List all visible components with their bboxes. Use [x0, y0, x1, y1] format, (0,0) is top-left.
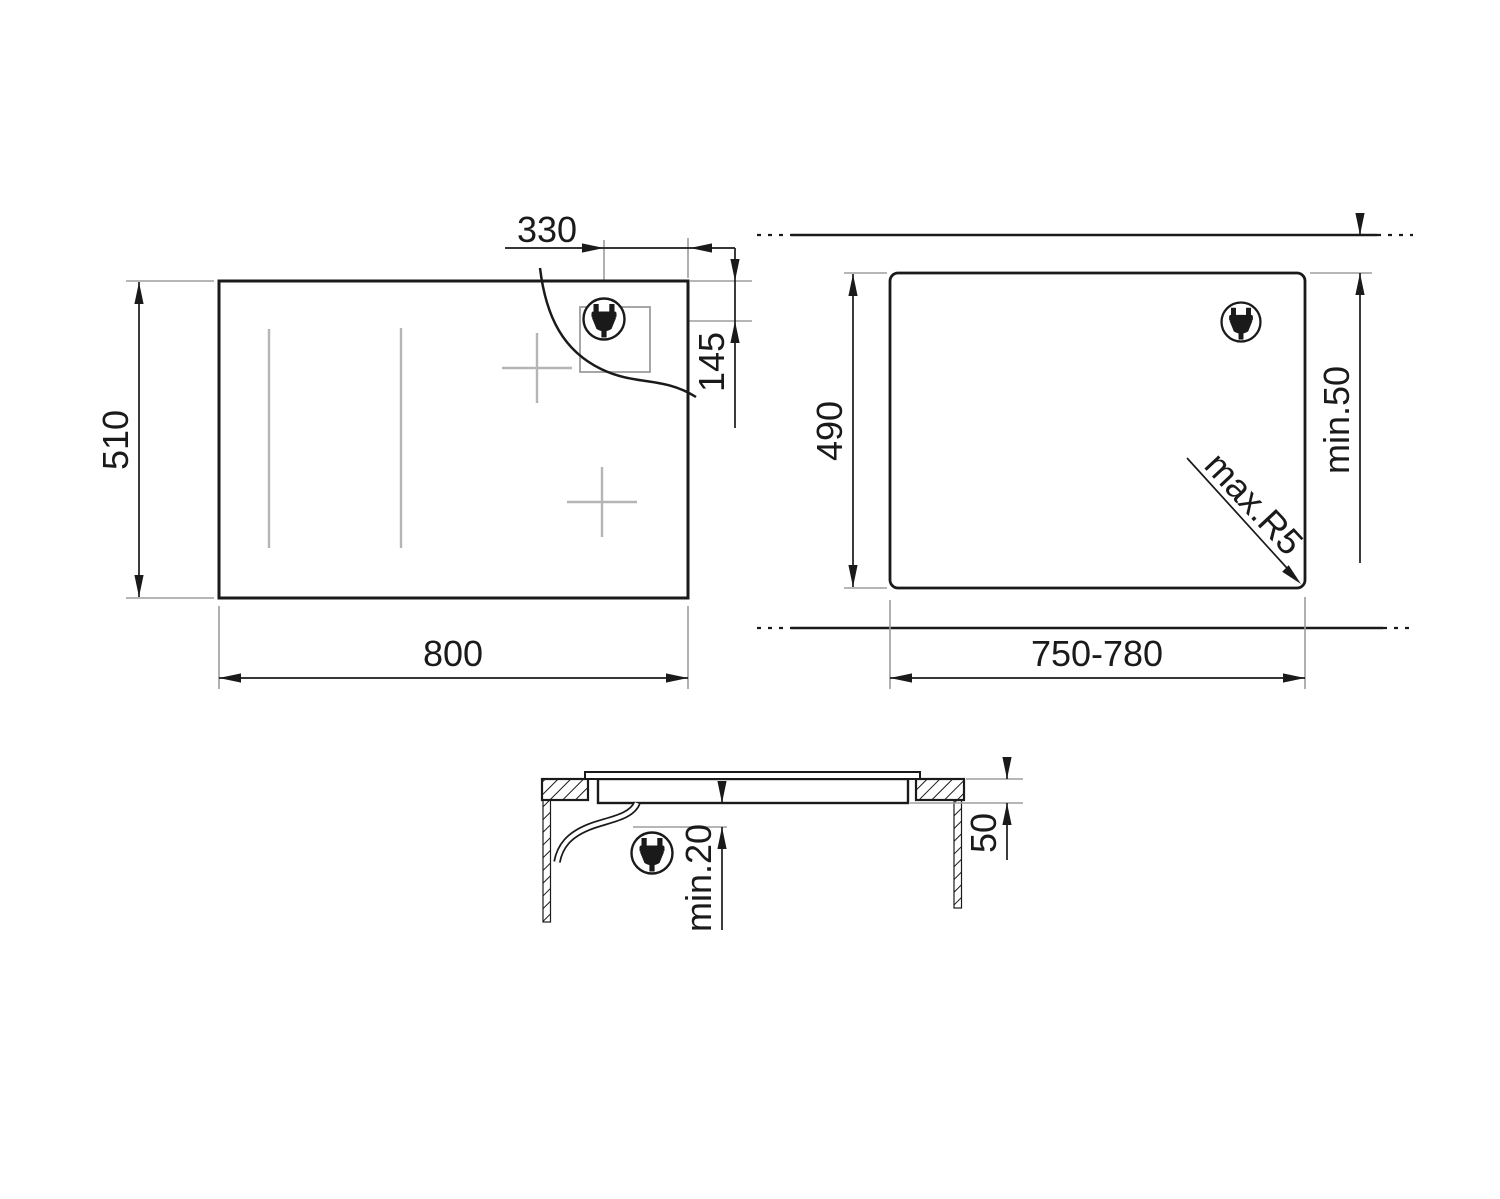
dimension-height-510: 510	[95, 282, 144, 597]
hob-body-section	[598, 779, 908, 803]
dimension-width-800: 800	[219, 633, 688, 683]
cutout-view: 490 750-780 min.50 max.R5	[757, 213, 1413, 689]
dimension-label: 750-780	[1031, 633, 1163, 674]
dimension-label: 145	[691, 332, 732, 392]
dimension-label: 50	[963, 813, 1004, 853]
dimension-label: min.50	[1316, 366, 1357, 474]
power-plug-icon	[1222, 303, 1261, 342]
dimension-label: 330	[517, 209, 577, 250]
dimension-cutout-height-490: 490	[809, 274, 858, 587]
dimension-label: 800	[423, 633, 483, 674]
dimension-rear-clearance-min50: min.50	[1316, 213, 1365, 563]
hob-glass-top	[585, 772, 920, 779]
dimension-label: 490	[809, 401, 850, 461]
dimension-worktop-thickness-50: 50	[963, 757, 1012, 860]
dimension-label: 510	[95, 410, 136, 470]
hob-installation-drawing: 510 800 330 145	[0, 0, 1500, 1199]
power-plug-icon	[632, 833, 673, 874]
cabinet-side-panel	[543, 800, 551, 922]
power-plug-icon	[584, 299, 625, 340]
dimension-plug-330: 330	[505, 209, 735, 253]
worktop-section-hatched	[542, 779, 588, 800]
dimension-label: min.20	[678, 824, 719, 932]
technical-drawing-page: 510 800 330 145	[0, 0, 1500, 1199]
section-view: min.20 50	[542, 757, 1023, 932]
power-cable	[557, 803, 637, 862]
worktop-section-hatched	[916, 779, 964, 800]
dimension-cutout-width-750-780: 750-780	[890, 633, 1305, 683]
dimension-plug-145: 145	[691, 248, 740, 428]
top-view: 510 800 330 145	[95, 209, 752, 689]
cabinet-side-panel	[954, 800, 962, 908]
